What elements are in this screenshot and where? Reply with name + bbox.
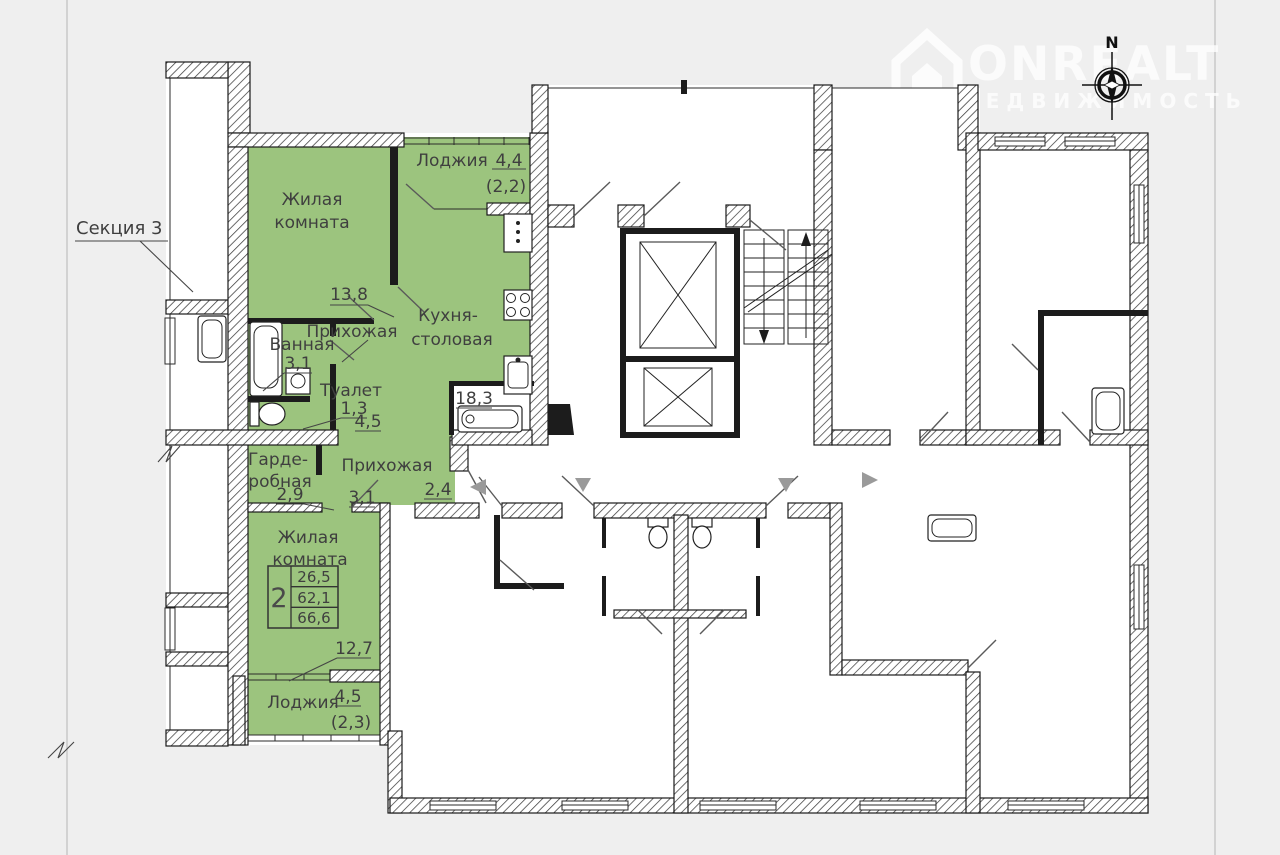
floorplan-image: ONREALT НЕДВИЖИМОСТЬ [0, 0, 1280, 855]
room-loggia-top-name: Лоджия [416, 151, 488, 171]
bathtub-right-apartment [1092, 388, 1124, 434]
room-wardrobe-area: 2,9 [276, 485, 303, 505]
room-living-low-name-1: Жилая [278, 528, 339, 548]
room-wardrobe-name-1: Гарде- [248, 450, 308, 470]
room-living-top-name-2: комната [274, 213, 349, 233]
stamp-total-area: 66,6 [297, 609, 330, 627]
kitchen-sink [504, 356, 532, 394]
room-wc-name: Туалет [319, 381, 382, 401]
watermark-brand: ONREALT [968, 37, 1220, 92]
room-living-low-area: 12,7 [335, 639, 373, 659]
compass-north-label: N [1105, 33, 1118, 52]
room-loggia-low-area: 4,5 [334, 687, 361, 707]
toilet-bottom-left [648, 518, 668, 548]
room-loggia-top-area-reduced: (2,2) [486, 177, 526, 197]
chute-shaft [548, 404, 574, 435]
bathtub-green [250, 322, 282, 396]
room-loggia-top-area: 4,4 [495, 151, 522, 171]
toilet-bottom-right [692, 518, 712, 548]
room-kitchen-name-2: столовая [411, 330, 493, 350]
bathtub-bottom-unit [928, 515, 976, 541]
room-living-low-name-2: комната [272, 550, 347, 570]
room-hall-low-area: 3,1 [348, 488, 375, 508]
room-loggia-low-area-reduced: (2,3) [331, 713, 371, 733]
stamp-rooms-count: 2 [270, 583, 287, 614]
stamp-living-area: 26,5 [297, 568, 330, 586]
toilet-green [250, 402, 285, 426]
room-kitchen-name-1: Кухня- [418, 306, 478, 326]
room-hall-top-name: Прихожая [306, 322, 397, 342]
room-bath-area: 3,1 [284, 354, 311, 374]
kitchen-stove [504, 290, 532, 320]
room-hall-low-area2: 2,4 [424, 480, 451, 500]
room-hall-low-name: Прихожая [341, 456, 432, 476]
bathtub-strip [198, 316, 226, 362]
bathtub-service [458, 406, 522, 432]
room-loggia-low-name: Лоджия [267, 693, 339, 713]
room-living-top-name-1: Жилая [282, 190, 343, 210]
room-kitchen-area: 18,3 [455, 389, 493, 409]
room-living-top-area: 13,8 [330, 285, 368, 305]
kitchen-cabinet [504, 214, 532, 252]
section-label: Секция 3 [76, 218, 162, 239]
room-hall-top-area: 4,5 [354, 412, 381, 432]
stamp-apartment-area: 62,1 [297, 589, 330, 607]
